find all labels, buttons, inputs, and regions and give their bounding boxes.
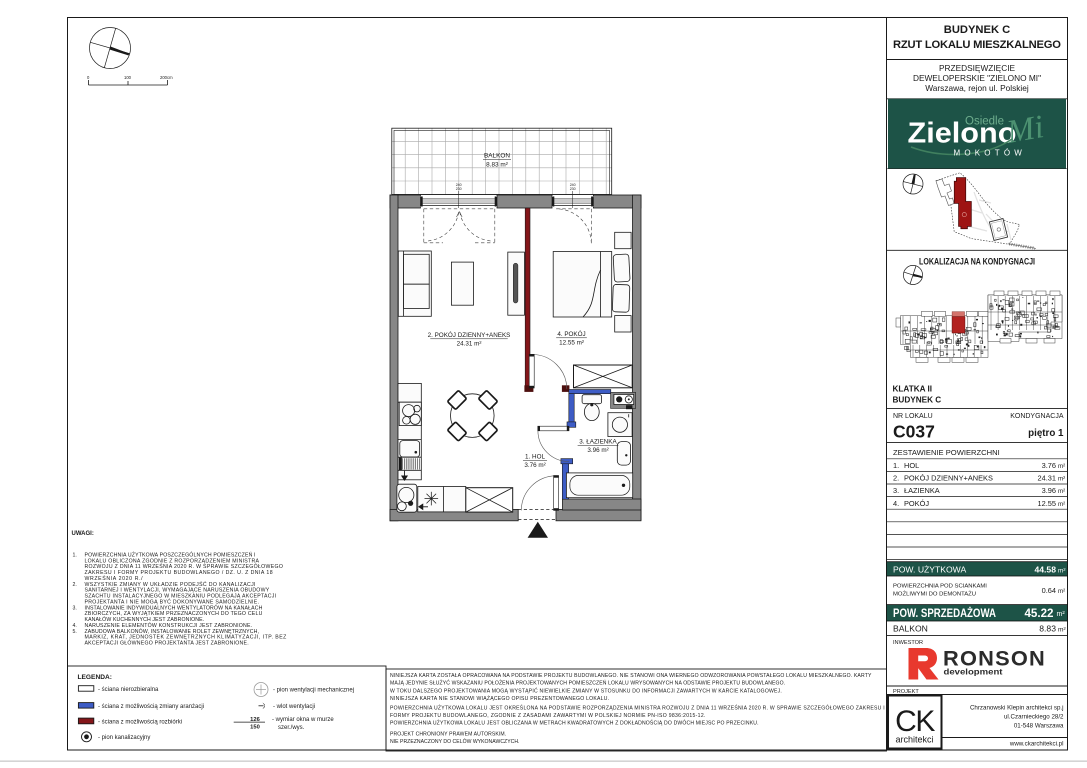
svg-text:POW. SPRZEDAŻOWA: POW. SPRZEDAŻOWA — [893, 607, 997, 620]
svg-text:FORMY PROJEKTU BUDOWLANEGO, ZG: FORMY PROJEKTU BUDOWLANEGO, ZGODNIE Z ZA… — [390, 713, 705, 719]
svg-text:24.31 m²: 24.31 m² — [457, 340, 482, 347]
svg-text:LEGENDA:: LEGENDA: — [78, 674, 112, 681]
svg-text:12.55: 12.55 — [1038, 499, 1057, 508]
svg-text:MAJĄ JEDYNIE SŁUŻYĆ WSKAZANIU: MAJĄ JEDYNIE SŁUŻYĆ WSKAZANIU POŁOŻENIA … — [390, 680, 785, 687]
svg-text:LOKALIZACJA NA KONDYGNACJI: LOKALIZACJA NA KONDYGNACJI — [919, 257, 1035, 267]
svg-text:ZESTAWIENIE POWIERZCHNI: ZESTAWIENIE POWIERZCHNI — [893, 448, 1000, 457]
svg-text:POKÓJ: POKÓJ — [904, 499, 929, 508]
svg-text:MOKOTÓW: MOKOTÓW — [953, 149, 1026, 158]
svg-text:- ściana nierozbieralna: - ściana nierozbieralna — [98, 687, 159, 693]
svg-text:45.22: 45.22 — [1024, 607, 1053, 620]
svg-text:piętro 1: piętro 1 — [1028, 428, 1064, 439]
svg-text:PRZEDSIĘWZIĘCIE: PRZEDSIĘWZIĘCIE — [939, 63, 1016, 73]
svg-text:12.55 m²: 12.55 m² — [559, 339, 584, 346]
svg-text:W TOKU DALSZEGO PROJEKTOWANIA: W TOKU DALSZEGO PROJEKTOWANIA MOGĄ WYSTĄ… — [390, 687, 782, 694]
svg-text:C037: C037 — [893, 422, 935, 442]
svg-text:UWAGI:: UWAGI: — [72, 531, 94, 537]
svg-text:2.: 2. — [73, 582, 77, 588]
svg-text:POWIERZCHNIA UŻYTKOWA LOKALU J: POWIERZCHNIA UŻYTKOWA LOKALU JEST OKREŚL… — [390, 704, 885, 712]
svg-text:DEWELOPERSKIE "ZIELONO MI": DEWELOPERSKIE "ZIELONO MI" — [913, 73, 1041, 83]
svg-text:m²: m² — [1057, 611, 1066, 618]
svg-text:WRZEŚNIA 2020 R./: WRZEŚNIA 2020 R./ — [85, 574, 144, 582]
svg-text:5.: 5. — [73, 629, 77, 635]
svg-text:szer./wys.: szer./wys. — [278, 725, 305, 731]
svg-text:KLATKA II: KLATKA II — [893, 385, 933, 394]
svg-text:- ściana z możliwością rozbiór: - ściana z możliwością rozbiórki — [98, 719, 182, 725]
svg-text:3.96: 3.96 — [1042, 486, 1056, 495]
svg-text:WSZYSTKIE ZMIANY W UKŁADZIE PO: WSZYSTKIE ZMIANY W UKŁADZIE PODEJŚĆ DO K… — [85, 580, 256, 588]
svg-text:m²: m² — [1058, 476, 1065, 483]
svg-text:PROJEKT: PROJEKT — [893, 689, 919, 695]
svg-text:- pion wentylacji mechanicznej: - pion wentylacji mechanicznej — [273, 688, 354, 694]
svg-text:m²: m² — [1058, 588, 1065, 595]
svg-text:POWIERZCHNIA POD SCIANKAMI: POWIERZCHNIA POD SCIANKAMI — [893, 584, 987, 590]
svg-text:0.64: 0.64 — [1042, 586, 1056, 595]
svg-text:ul.Czarnieckiego 28/2: ul.Czarnieckiego 28/2 — [1004, 714, 1064, 721]
svg-text:architekci: architekci — [895, 735, 933, 745]
svg-text:- pion kanalizacyjny: - pion kanalizacyjny — [98, 735, 150, 741]
svg-text:3.96 m²: 3.96 m² — [587, 447, 608, 454]
svg-text:HOL: HOL — [904, 461, 919, 470]
svg-text:- ściana z możliwością zmiany: - ściana z możliwością zmiany aranżacji — [98, 704, 204, 710]
svg-text:m²: m² — [1058, 627, 1066, 634]
svg-text:www.ckarchitekci.pl: www.ckarchitekci.pl — [1009, 741, 1064, 748]
svg-text:POKÓJ DZIENNY+ANEKS: POKÓJ DZIENNY+ANEKS — [904, 474, 993, 483]
svg-text:ŁAZIENKA: ŁAZIENKA — [904, 486, 940, 495]
svg-text:1.: 1. — [73, 553, 77, 559]
svg-text:230: 230 — [570, 187, 576, 191]
svg-text:3.76: 3.76 — [1042, 461, 1056, 470]
svg-text:8.83 m²: 8.83 m² — [486, 162, 508, 169]
svg-text:230: 230 — [456, 187, 462, 191]
svg-text:Zielono: Zielono — [908, 118, 1017, 150]
svg-text:01-548 Warszawa: 01-548 Warszawa — [1014, 723, 1064, 730]
svg-text:POW. UŻYTKOWA: POW. UŻYTKOWA — [893, 564, 966, 574]
svg-text:BUDYNEK C: BUDYNEK C — [944, 24, 1011, 36]
svg-text:m²: m² — [1058, 488, 1065, 495]
svg-text:BUDYNEK C: BUDYNEK C — [893, 396, 942, 405]
svg-text:MOŻLIWYMI DO DEMONTAŻU: MOŻLIWYMI DO DEMONTAŻU — [893, 591, 976, 598]
svg-text:Chrzanowski Klepin architekci: Chrzanowski Klepin architekci sp.j — [970, 705, 1064, 712]
svg-text:PROJEKT CHRONIONY PRAWEM AUTOR: PROJEKT CHRONIONY PRAWEM AUTORSKIM. — [390, 732, 506, 738]
svg-text:4.: 4. — [893, 499, 899, 508]
svg-text:1. HOL: 1. HOL — [525, 454, 545, 461]
svg-text:- wymiar okna w murze: - wymiar okna w murze — [272, 717, 334, 723]
svg-text:BALKON: BALKON — [484, 153, 510, 160]
svg-text:2.: 2. — [893, 474, 899, 483]
svg-text:KONDYGNACJA: KONDYGNACJA — [1010, 413, 1064, 420]
svg-text:m²: m² — [1058, 463, 1065, 470]
svg-text:1.: 1. — [893, 461, 899, 470]
svg-text:CK: CK — [895, 705, 935, 738]
svg-text:Mi: Mi — [1003, 109, 1046, 151]
svg-text:100: 100 — [124, 75, 132, 80]
svg-text:3.: 3. — [73, 605, 77, 611]
svg-text:development: development — [944, 667, 1003, 677]
svg-text:126: 126 — [250, 717, 260, 723]
svg-text:NR LOKALU: NR LOKALU — [893, 413, 933, 420]
svg-text:AKCEPTACJI GŁÓWNEGO PROJEKTANT: AKCEPTACJI GŁÓWNEGO PROJEKTANTA JEST ZAB… — [85, 640, 249, 647]
svg-text:BALKON: BALKON — [893, 624, 928, 634]
svg-text:200cm: 200cm — [160, 75, 173, 80]
svg-text:3. ŁAZIENKA: 3. ŁAZIENKA — [579, 439, 617, 446]
svg-text:NIE PRZEZNACZONY DO CELÓW WYKO: NIE PRZEZNACZONY DO CELÓW WYKONAWCZYCH. — [390, 738, 519, 745]
svg-text:4. POKÓJ: 4. POKÓJ — [557, 329, 585, 338]
svg-text:3.76 m²: 3.76 m² — [524, 462, 545, 469]
svg-text:NINIEJSZA KARTA NIE STANOWI WI: NINIEJSZA KARTA NIE STANOWI WIĄŻĄCEGO OP… — [390, 695, 609, 702]
svg-text:NINIEJSZA KARTA ZOSTAŁA OPRACO: NINIEJSZA KARTA ZOSTAŁA OPRACOWANA NA PO… — [390, 673, 872, 679]
svg-text:3.: 3. — [893, 486, 899, 495]
svg-text:INWESTOR: INWESTOR — [893, 640, 923, 646]
svg-text:24.31: 24.31 — [1038, 474, 1057, 483]
svg-text:RZUT LOKALU MIESZKALNEGO: RZUT LOKALU MIESZKALNEGO — [893, 39, 1061, 51]
svg-text:44.58: 44.58 — [1034, 564, 1056, 574]
svg-text:ROZWOJU Z DNIA 11 WRZEŚNIA 202: ROZWOJU Z DNIA 11 WRZEŚNIA 2020 R. W SPR… — [85, 562, 283, 570]
svg-text:Warszawa, rejon ul. Polskiej: Warszawa, rejon ul. Polskiej — [925, 83, 1029, 93]
svg-text:8.83: 8.83 — [1039, 624, 1056, 634]
svg-text:2. POKÓJ DZIENNY+ANEKS: 2. POKÓJ DZIENNY+ANEKS — [428, 330, 511, 339]
svg-text:m²: m² — [1058, 567, 1065, 574]
svg-text:POWIERZCHNIA UŻYTKOWA LOKALU J: POWIERZCHNIA UŻYTKOWA LOKALU JEST OBLICZ… — [390, 719, 759, 727]
svg-text:150: 150 — [250, 725, 260, 731]
svg-text:m²: m² — [1058, 501, 1065, 508]
svg-text:- wlot wentylacji: - wlot wentylacji — [273, 704, 315, 710]
